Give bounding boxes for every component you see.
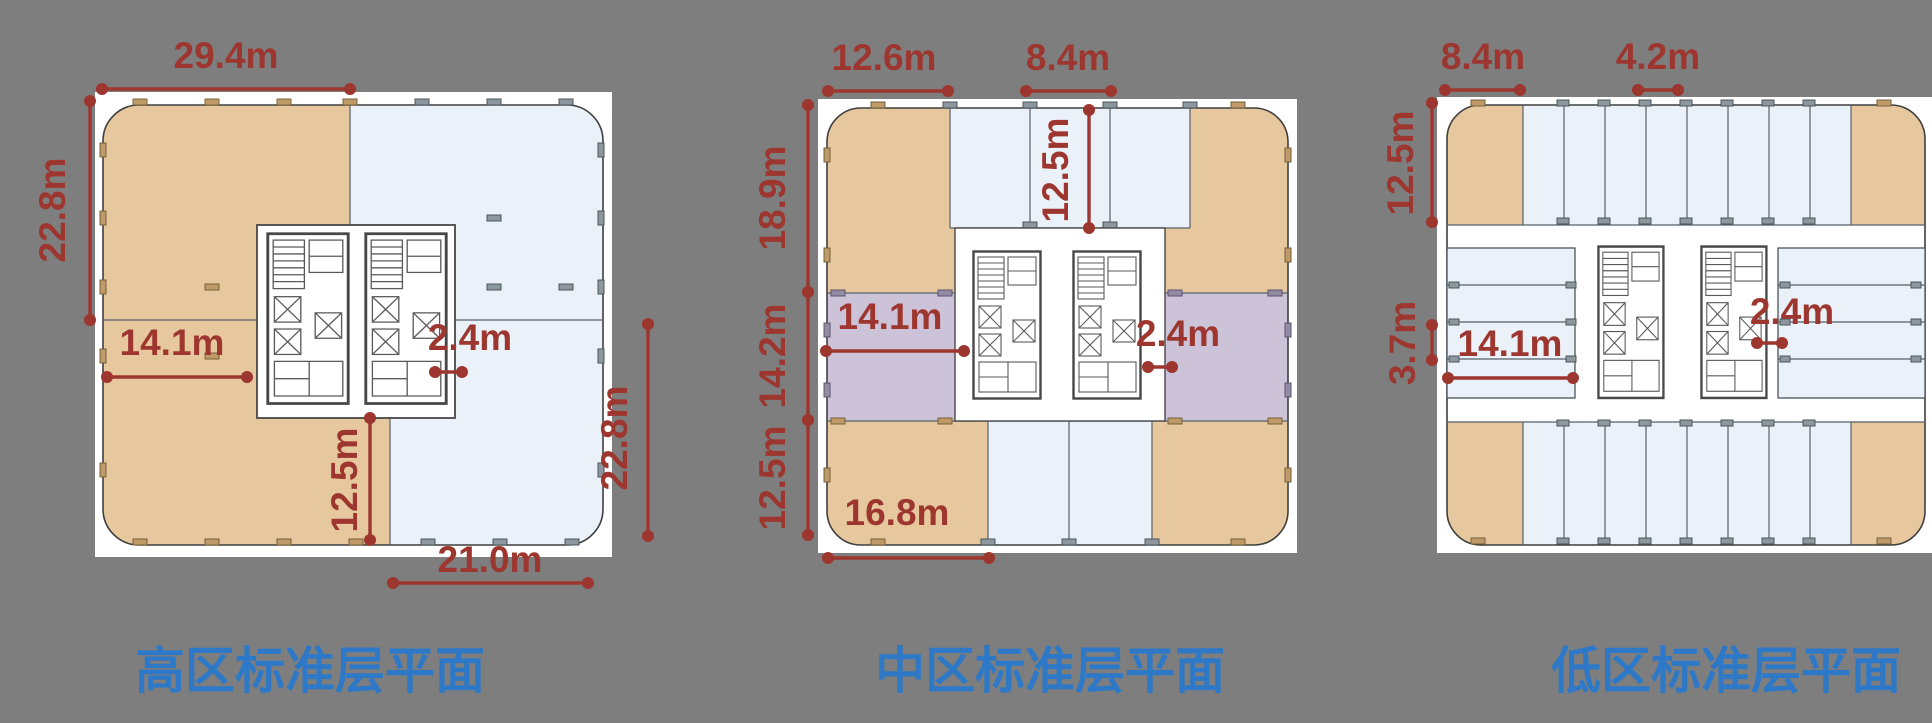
dim-inner-depth-label: 12.5m [324,428,365,533]
dim-middle-width-label: 14.1m [838,296,943,337]
dim-core-corridor-label: 2.4m [428,317,512,358]
plan-mid-zone: 12.6m 8.4m 12.5m 18.9m 14.2m 12.5m 14.1m [752,37,1297,699]
dim-middle-width-label: 14.1m [1458,323,1563,364]
dim-core-corridor-label: 2.4m [1136,313,1220,354]
dim-left-middle-label: 14.2m [752,304,793,409]
plan-title-high-zone: 高区标准层平面 [135,643,485,699]
dim-inner-width-label: 14.1m [120,322,225,363]
dim-top-left-width-label: 12.6m [832,37,937,78]
dim-left-height-label: 22.8m [32,158,73,263]
dim-top-center-width-label: 8.4m [1026,37,1110,78]
dim-left-upper-height-label: 12.5m [1380,111,1421,216]
dim-left-upper-label: 18.9m [752,146,793,251]
dim-left-bay-height: 3.7m [1382,301,1438,385]
dim-bottom-width-label: 21.0m [438,539,543,580]
plan-title-low-zone: 低区标准层平面 [1551,643,1901,699]
dim-left-bay-height-label: 3.7m [1382,301,1423,385]
dim-top-bay-width: 4.2m [1616,36,1700,96]
dim-left-lower-label: 12.5m [752,426,793,531]
dim-bottom-left-width-label: 16.8m [845,492,950,533]
floor-plans-canvas: 29.4m 22.8m 14.1m 2.4m 12.5m 21.0m [0,0,1932,723]
dim-left-upper-height: 12.5m [1380,97,1438,228]
plan-low-zone: 8.4m 4.2m 12.5m 3.7m 14.1m 2.4m 低区标准层平面 [1380,36,1932,699]
service-core [257,225,455,418]
service-core [955,228,1165,421]
dim-core-corridor-label: 2.4m [1750,291,1834,332]
dim-right-height-label: 22.8m [594,386,635,491]
dim-top-width: 29.4m [96,35,356,95]
dim-top-bay-width-label: 4.2m [1616,36,1700,77]
dim-inner-top-depth-label: 12.5m [1035,118,1076,223]
dim-top-center-width: 8.4m [1020,37,1117,97]
dim-top-left-width-label: 8.4m [1441,36,1525,77]
dim-left-stack: 18.9m 14.2m 12.5m [752,99,814,541]
plan-title-mid-zone: 中区标准层平面 [875,643,1225,699]
dim-top-width-label: 29.4m [174,35,279,76]
dim-top-left-width: 12.6m [822,37,954,97]
dim-top-left-width: 8.4m [1439,36,1526,96]
dim-left-height: 22.8m [32,95,96,326]
plan-high-zone: 29.4m 22.8m 14.1m 2.4m 12.5m 21.0m [32,35,654,699]
